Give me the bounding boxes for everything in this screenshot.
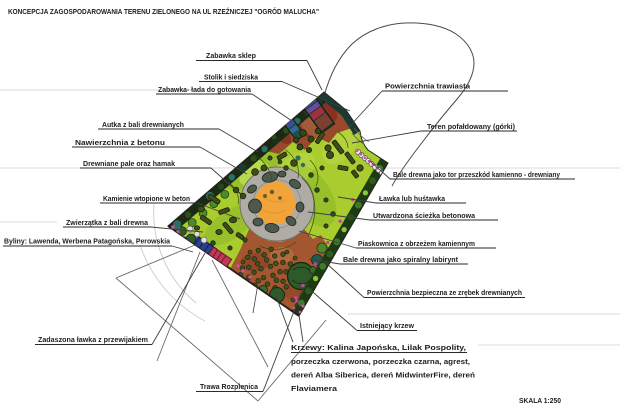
svg-text:Krzewy: Kalina Japońska, Lilak: Krzewy: Kalina Japońska, Lilak Pospolity… <box>291 345 466 352</box>
svg-text:Zadaszona ławka z przewijakiem: Zadaszona ławka z przewijakiem <box>38 337 148 344</box>
svg-text:Teren pofałdowany (górki): Teren pofałdowany (górki) <box>427 124 515 131</box>
svg-text:Byliny: Lawenda, Werbena Patag: Byliny: Lawenda, Werbena Patagońska, Per… <box>4 239 170 246</box>
svg-text:Zwierzątka z bali drewna: Zwierzątka z bali drewna <box>66 220 148 227</box>
svg-text:Flaviamera: Flaviamera <box>291 386 337 393</box>
svg-text:Powierzchnia trawiasta: Powierzchnia trawiasta <box>385 84 470 91</box>
svg-text:Zabawka- łada do gotowania: Zabawka- łada do gotowania <box>158 87 251 94</box>
svg-text:Ławka lub huśtawka: Ławka lub huśtawka <box>379 196 445 203</box>
svg-text:Bale drewna jako spiralny labi: Bale drewna jako spiralny labirynt <box>343 257 459 264</box>
svg-text:Stolik i siedziska: Stolik i siedziska <box>204 75 258 82</box>
svg-text:Kamienie wtopione w beton: Kamienie wtopione w beton <box>103 196 190 203</box>
svg-text:Trawa Rozplenica: Trawa Rozplenica <box>200 384 258 391</box>
svg-text:KONCEPCJA ZAGOSPODAROWANIA TER: KONCEPCJA ZAGOSPODAROWANIA TERENU ZIELON… <box>8 7 319 16</box>
svg-text:dereń Alba Siberica, dereń Mid: dereń Alba Siberica, dereń MidwinterFire… <box>291 373 475 380</box>
svg-text:Bale drewna jako tor przeszkód: Bale drewna jako tor przeszkód kamienno … <box>393 172 560 179</box>
svg-text:porzeczka czerwona, porzeczka: porzeczka czerwona, porzeczka czarna, ag… <box>291 359 470 366</box>
svg-text:SKALA 1:250: SKALA 1:250 <box>519 396 561 405</box>
svg-text:Nawierzchnia z betonu: Nawierzchnia z betonu <box>75 140 165 147</box>
svg-text:Powierzchnia bezpieczna ze zrę: Powierzchnia bezpieczna ze zrębek drewni… <box>367 290 522 297</box>
svg-text:Drewniane pale oraz hamak: Drewniane pale oraz hamak <box>83 161 175 168</box>
svg-text:Zabawka sklep: Zabawka sklep <box>206 53 256 60</box>
svg-text:Autka z bali drewnianych: Autka z bali drewnianych <box>102 122 184 129</box>
svg-text:Istniejący krzew: Istniejący krzew <box>360 323 415 330</box>
svg-text:Utwardzona ścieżka betonowa: Utwardzona ścieżka betonowa <box>373 213 475 220</box>
svg-text:Piaskownica z obrzeżem kamienn: Piaskownica z obrzeżem kamiennym <box>358 241 475 248</box>
